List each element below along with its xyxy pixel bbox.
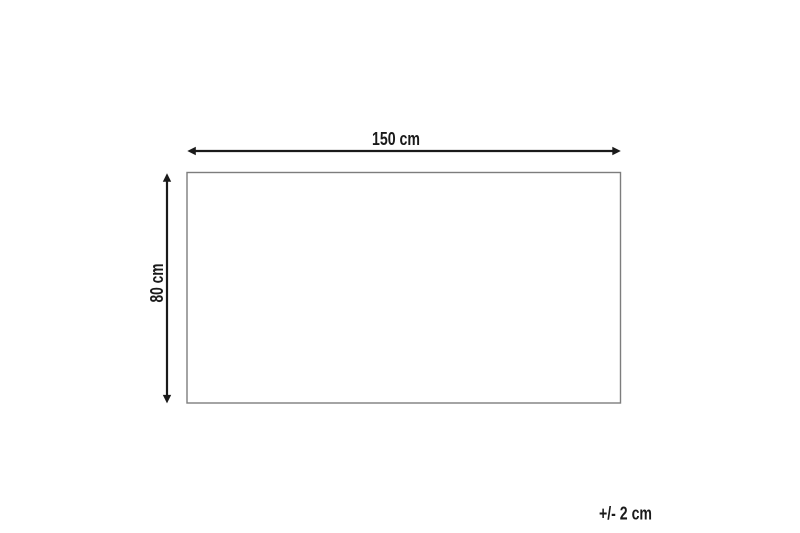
svg-text:150 cm: 150 cm [372,129,420,149]
svg-text:80 cm: 80 cm [147,264,167,303]
svg-text:+/- 2 cm: +/- 2 cm [599,504,652,524]
